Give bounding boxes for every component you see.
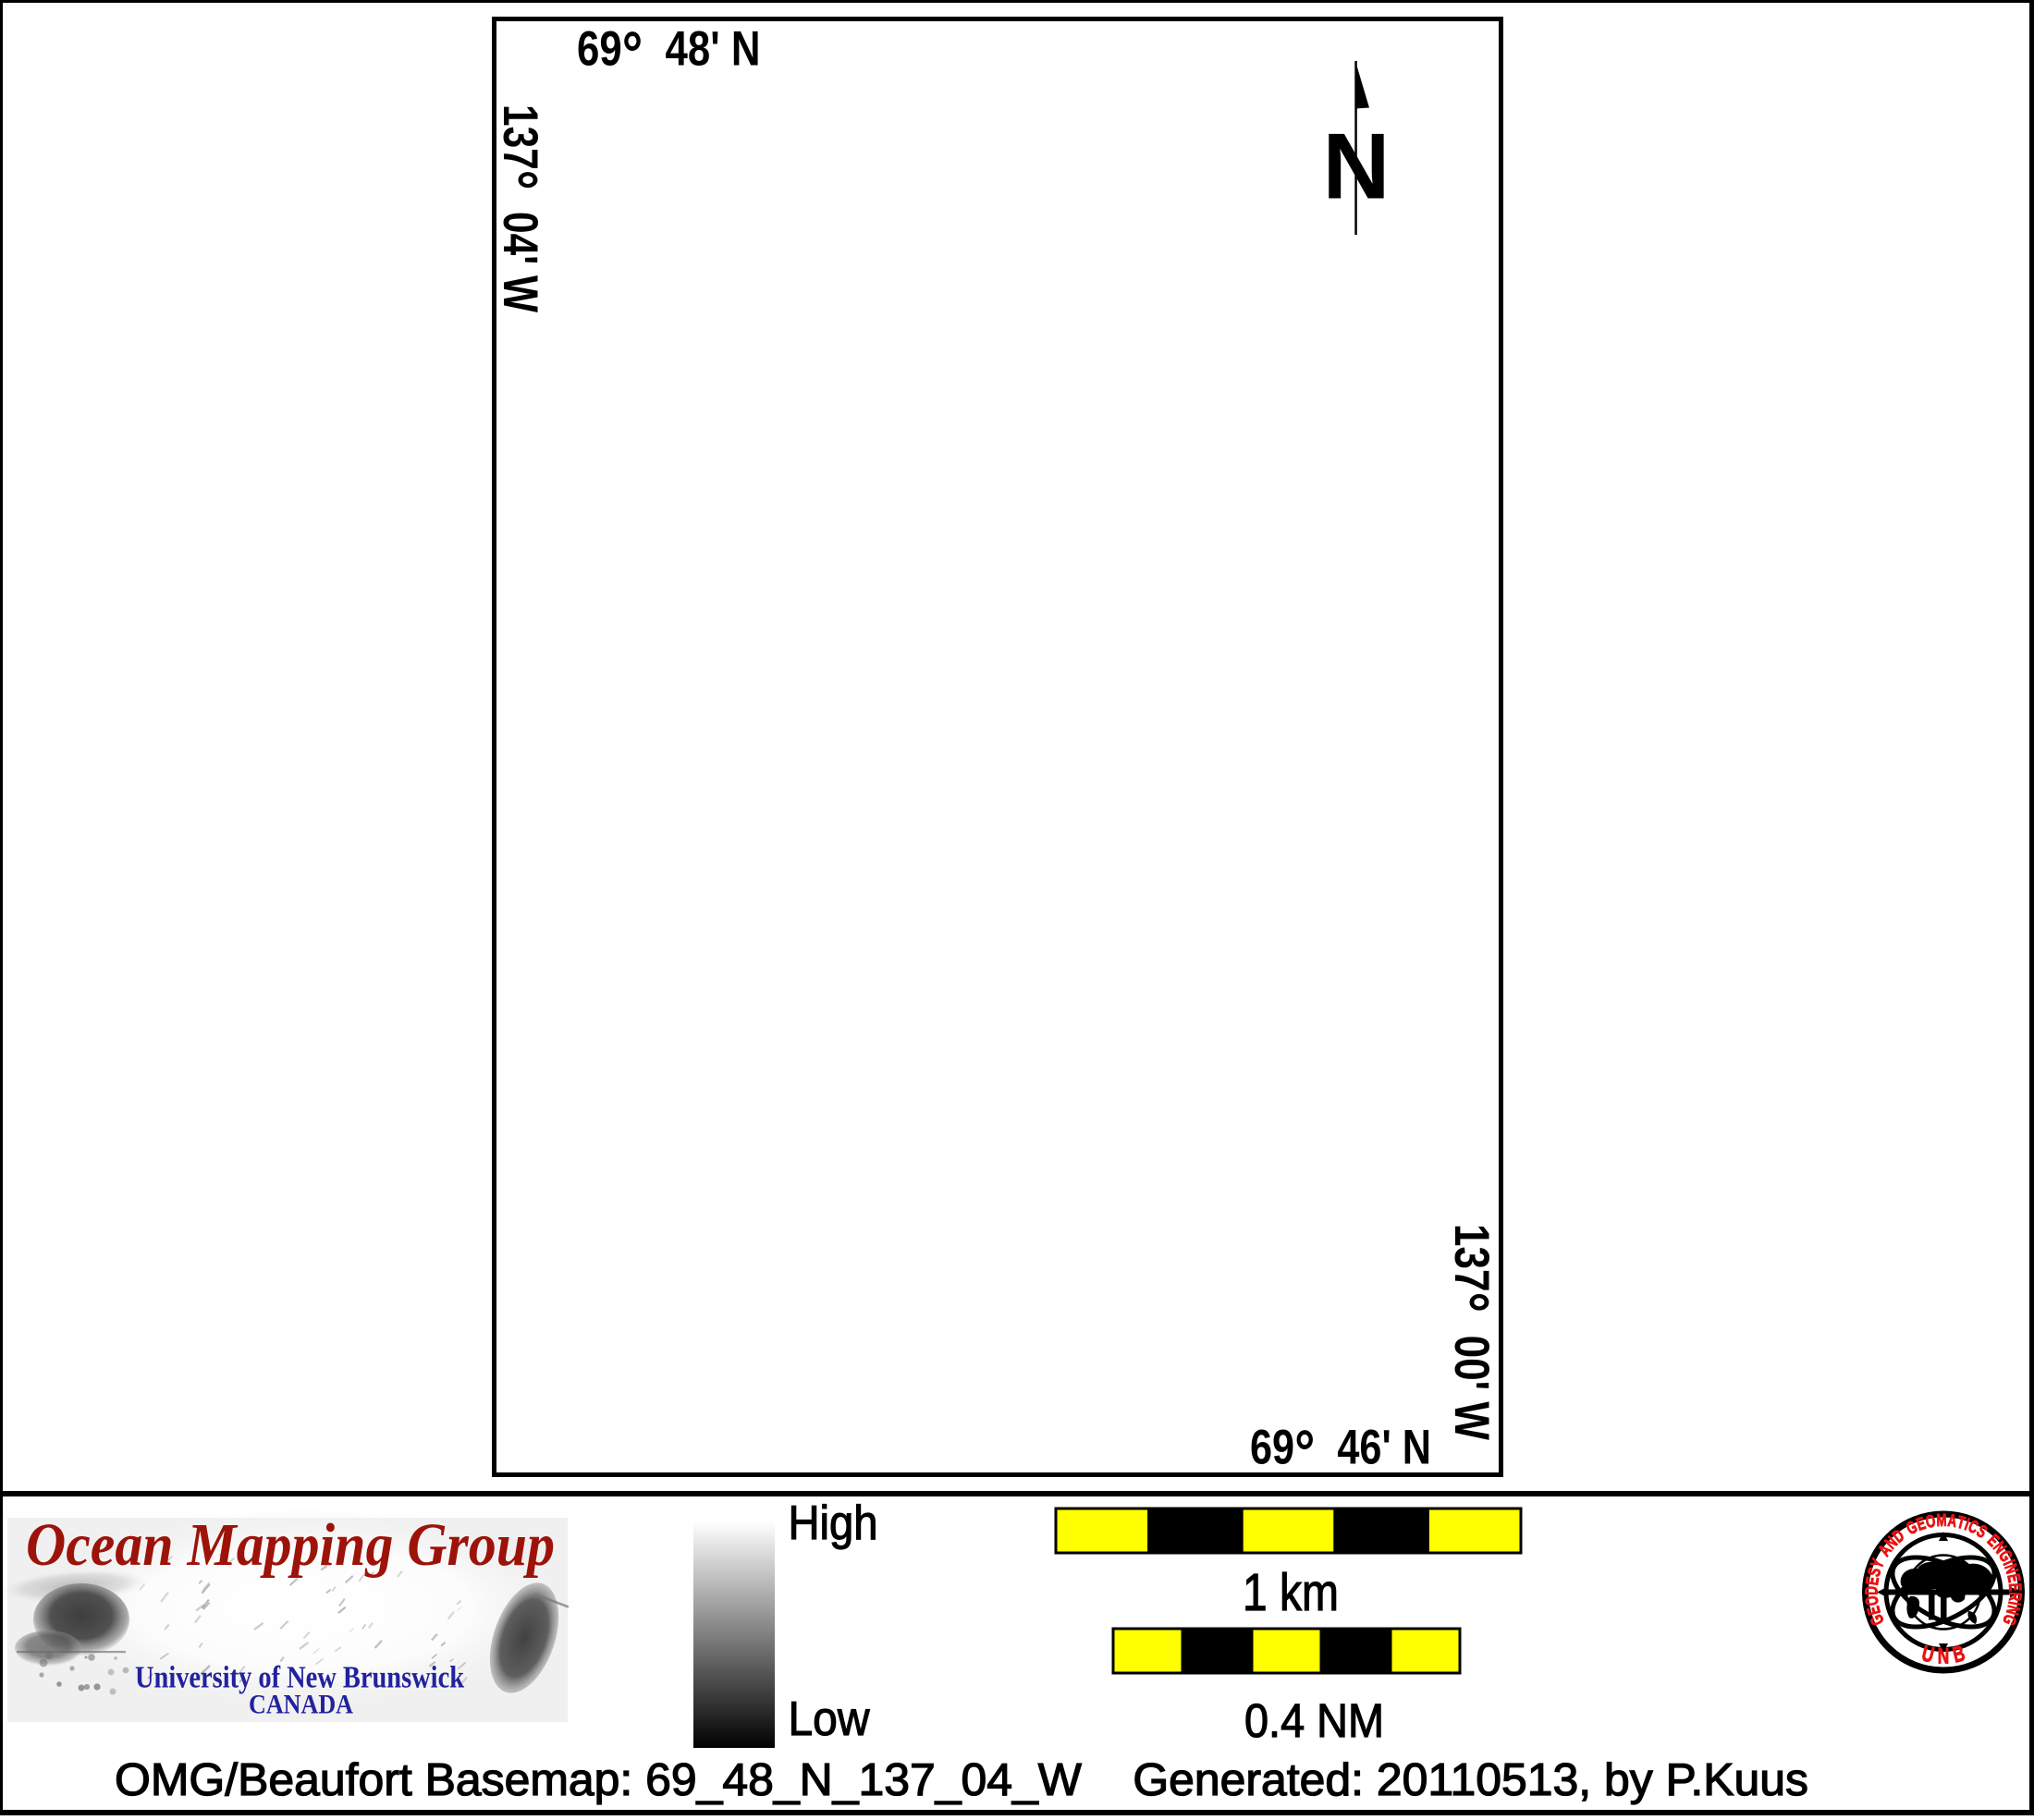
svg-text:CANADA: CANADA xyxy=(249,1690,353,1720)
svg-text:D: D xyxy=(1862,1586,1881,1595)
svg-text:0.4 NM: 0.4 NM xyxy=(1244,1694,1384,1747)
svg-text:N: N xyxy=(1938,1644,1949,1668)
svg-text:Low: Low xyxy=(789,1692,870,1746)
svg-text:M: M xyxy=(1936,1511,1947,1531)
svg-text:N: N xyxy=(1323,115,1391,218)
svg-text:1 km: 1 km xyxy=(1243,1563,1339,1622)
svg-text:E: E xyxy=(2004,1582,2024,1592)
svg-text:OMG/Beaufort Basemap: 69_48_N_: OMG/Beaufort Basemap: 69_48_N_137_04_W G… xyxy=(115,1754,1808,1805)
svg-text:Ocean Mapping Group: Ocean Mapping Group xyxy=(26,1511,555,1579)
svg-text:High: High xyxy=(789,1496,878,1550)
